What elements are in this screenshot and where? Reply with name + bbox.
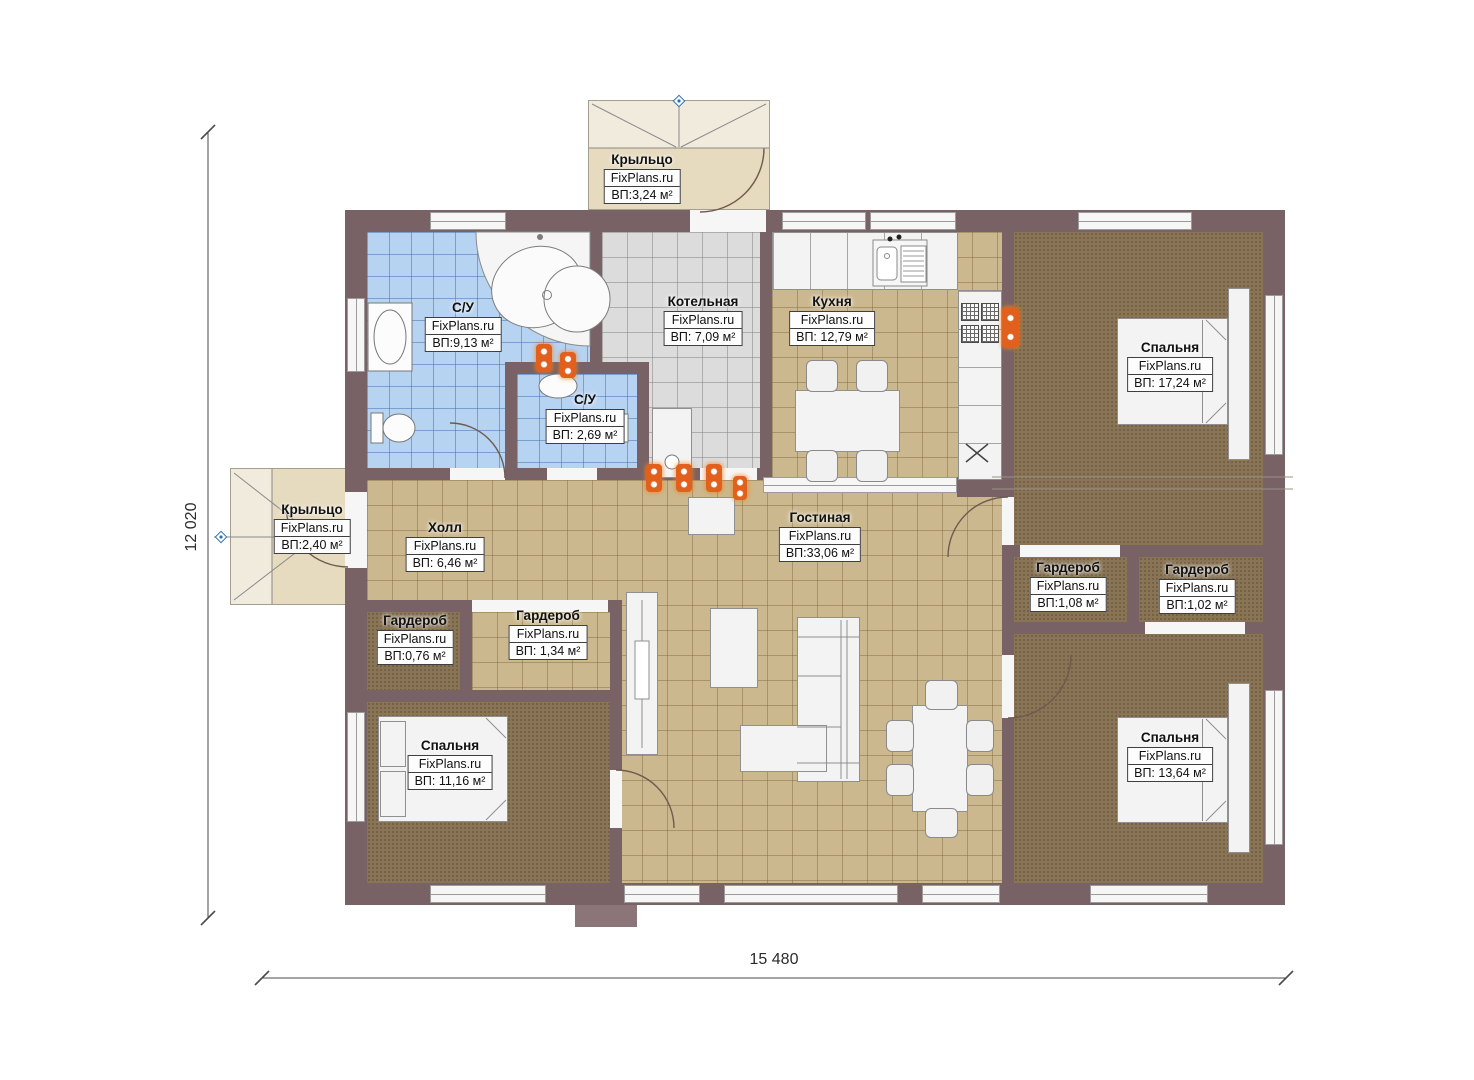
room-label-boiler: Котельная FixPlans.ru ВП: 7,09 м² [664, 294, 743, 346]
room-name: Гардероб [1165, 562, 1229, 577]
stove-burner [981, 303, 999, 321]
room-name: Спальня [1141, 730, 1199, 745]
room-name: Спальня [1141, 340, 1199, 355]
watermark: FixPlans.ru [426, 318, 501, 334]
floor-plan-canvas: Крыльцо FixPlans.ru ВП:3,24 м² С/У FixPl… [0, 0, 1474, 1080]
watermark: FixPlans.ru [510, 626, 587, 642]
room-area: ВП:1,08 м² [1031, 594, 1106, 611]
wall-pier [957, 477, 1014, 497]
room-info-box: FixPlans.ru ВП:9,13 м² [425, 317, 502, 352]
room-area: ВП: 17,24 м² [1128, 374, 1212, 391]
room-info-box: FixPlans.ru ВП:3,24 м² [604, 169, 681, 204]
door-opening [1002, 655, 1014, 718]
chair [966, 764, 994, 796]
room-name: Спальня [421, 738, 479, 753]
hall-cabinet [688, 497, 735, 535]
room-label-wc: С/У FixPlans.ru ВП: 2,69 м² [546, 392, 625, 444]
radiator [676, 464, 692, 492]
room-area: ВП: 1,34 м² [510, 642, 587, 659]
room-info-box: FixPlans.ru ВП: 17,24 м² [1127, 357, 1213, 392]
coffee-table [710, 608, 758, 688]
kitchen-table [795, 390, 900, 452]
room-info-box: FixPlans.ru ВП: 13,64 м² [1127, 747, 1213, 782]
wall-segment [367, 690, 622, 702]
window [1265, 295, 1283, 455]
room-info-box: FixPlans.ru ВП:1,08 м² [1030, 577, 1107, 612]
chair [966, 720, 994, 752]
door-opening [1002, 497, 1014, 545]
sofa-chaise [740, 725, 827, 772]
kitchen-counter-top [772, 232, 958, 290]
room-info-box: FixPlans.ru ВП:1,02 м² [1159, 579, 1236, 614]
room-name: Котельная [668, 294, 739, 309]
window-sill-shelf [1228, 683, 1250, 853]
radiator [646, 464, 662, 492]
radiator [733, 476, 747, 500]
room-area: ВП: 2,69 м² [547, 426, 624, 443]
room-info-box: FixPlans.ru ВП: 12,79 м² [789, 311, 875, 346]
room-info-box: FixPlans.ru ВП:33,06 м² [779, 527, 861, 562]
radiator [1002, 307, 1019, 348]
room-area: ВП: 11,16 м² [409, 772, 492, 789]
room-info-box: FixPlans.ru ВП: 2,69 м² [546, 409, 625, 444]
room-name: Гардероб [516, 608, 580, 623]
exterior-step [575, 905, 637, 927]
watermark: FixPlans.ru [378, 631, 453, 647]
watermark: FixPlans.ru [1128, 748, 1212, 764]
room-label-wardrobe-w1: Гардероб FixPlans.ru ВП:0,76 м² [377, 613, 454, 665]
wall-segment [505, 362, 649, 374]
wall-segment [505, 374, 517, 480]
watermark: FixPlans.ru [1160, 580, 1235, 596]
wall-segment [760, 232, 772, 477]
window [870, 212, 956, 230]
window [1078, 212, 1192, 230]
tv-cabinet [626, 592, 658, 755]
watermark: FixPlans.ru [275, 520, 350, 536]
pillow [380, 721, 406, 767]
room-label-kitchen: Кухня FixPlans.ru ВП: 12,79 м² [789, 294, 875, 346]
watermark: FixPlans.ru [665, 312, 742, 328]
room-area: ВП: 7,09 м² [665, 328, 742, 345]
chair [886, 764, 914, 796]
window [724, 885, 898, 903]
room-area: ВП: 6,46 м² [407, 554, 484, 571]
chair [925, 808, 958, 838]
window [782, 212, 866, 230]
radiator [706, 464, 722, 492]
room-label-wardrobe-w2: Гардероб FixPlans.ru ВП: 1,34 м² [509, 608, 588, 660]
watermark: FixPlans.ru [407, 538, 484, 554]
wall-segment [610, 600, 622, 883]
chair [856, 450, 888, 482]
room-name: Крыльцо [611, 152, 672, 167]
room-label-porch-left: Крыльцо FixPlans.ru ВП:2,40 м² [274, 502, 351, 554]
room-info-box: FixPlans.ru ВП: 11,16 м² [408, 755, 493, 790]
room-label-porch-top: Крыльцо FixPlans.ru ВП:3,24 м² [604, 152, 681, 204]
stove-burner [981, 325, 999, 343]
room-info-box: FixPlans.ru ВП:0,76 м² [377, 630, 454, 665]
watermark: FixPlans.ru [790, 312, 874, 328]
door-opening [610, 770, 622, 828]
room-label-living: Гостиная FixPlans.ru ВП:33,06 м² [779, 510, 861, 562]
room-info-box: FixPlans.ru ВП: 1,34 м² [509, 625, 588, 660]
entry-door-opening-top [690, 210, 766, 232]
room-name: Крыльцо [281, 502, 342, 517]
room-name: Холл [428, 520, 462, 535]
wall-segment [1002, 634, 1014, 655]
stove-burner [961, 325, 979, 343]
wall-segment [460, 612, 472, 690]
watermark: FixPlans.ru [605, 170, 680, 186]
door-opening [1145, 622, 1245, 634]
room-name: Кухня [812, 294, 851, 309]
chair [806, 360, 838, 392]
room-area: ВП:9,13 м² [426, 334, 501, 351]
door-opening [450, 468, 505, 480]
window [347, 712, 365, 822]
room-name: Гостиная [789, 510, 850, 525]
room-label-hall: Холл FixPlans.ru ВП: 6,46 м² [406, 520, 485, 572]
watermark: FixPlans.ru [1128, 358, 1212, 374]
window [1265, 690, 1283, 845]
door-opening [547, 468, 597, 480]
pillow [380, 771, 406, 817]
room-name: С/У [574, 392, 596, 407]
chair [886, 720, 914, 752]
porch-top-steps-zone [589, 101, 769, 148]
room-area: ВП:33,06 м² [780, 544, 860, 561]
watermark: FixPlans.ru [409, 756, 492, 772]
wall-segment [590, 232, 602, 362]
room-name: Гардероб [1036, 560, 1100, 575]
watermark: FixPlans.ru [1031, 578, 1106, 594]
room-info-box: FixPlans.ru ВП: 7,09 м² [664, 311, 743, 346]
room-area: ВП:3,24 м² [605, 186, 680, 203]
dimension-height-label: 12 020 [183, 472, 203, 582]
room-label-bedroom-ne: Спальня FixPlans.ru ВП: 17,24 м² [1127, 340, 1213, 392]
window [1090, 885, 1208, 903]
window-sill-shelf [1228, 288, 1250, 460]
room-area: ВП:0,76 м² [378, 647, 453, 664]
wall-segment [1002, 545, 1014, 634]
room-label-bedroom-sw: Спальня FixPlans.ru ВП: 11,16 м² [408, 738, 493, 790]
room-label-bedroom-se: Спальня FixPlans.ru ВП: 13,64 м² [1127, 730, 1213, 782]
chair [806, 450, 838, 482]
door-opening [1020, 545, 1120, 557]
window [430, 212, 506, 230]
window [347, 298, 365, 372]
room-label-bathroom: С/У FixPlans.ru ВП:9,13 м² [425, 300, 502, 352]
watermark: FixPlans.ru [780, 528, 860, 544]
porch-left-steps-zone [231, 469, 272, 604]
room-label-wardrobe-e1: Гардероб FixPlans.ru ВП:1,08 м² [1030, 560, 1107, 612]
watermark: FixPlans.ru [547, 410, 624, 426]
room-info-box: FixPlans.ru ВП: 6,46 м² [406, 537, 485, 572]
window [430, 885, 546, 903]
room-name: С/У [452, 300, 474, 315]
window [922, 885, 1000, 903]
wall-segment [1002, 718, 1014, 883]
wall-segment [1002, 232, 1014, 477]
window [624, 885, 700, 903]
room-name: Гардероб [383, 613, 447, 628]
radiator [536, 344, 552, 372]
room-area: ВП:2,40 м² [275, 536, 350, 553]
room-info-box: FixPlans.ru ВП:2,40 м² [274, 519, 351, 554]
wall-segment [1127, 557, 1139, 622]
room-label-wardrobe-e2: Гардероб FixPlans.ru ВП:1,02 м² [1159, 562, 1236, 614]
radiator [560, 352, 576, 378]
room-area: ВП: 13,64 м² [1128, 764, 1212, 781]
dining-table [912, 705, 968, 812]
chair [856, 360, 888, 392]
room-area: ВП:1,02 м² [1160, 596, 1235, 613]
chair [925, 680, 958, 710]
room-area: ВП: 12,79 м² [790, 328, 874, 345]
stove-burner [961, 303, 979, 321]
dimension-width-label: 15 480 [694, 951, 854, 969]
